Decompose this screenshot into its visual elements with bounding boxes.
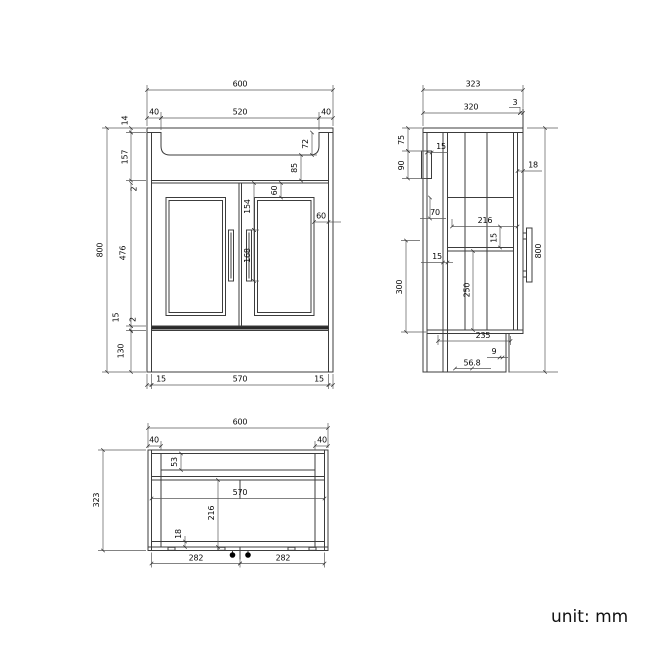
dim-front-base-inner-width: 570	[233, 375, 248, 384]
dim-front-base-right-inset: 15	[314, 375, 324, 384]
side-view-labels: 323 320 3 75 90 15 18 70 216 15 15 300 2…	[395, 80, 543, 368]
dim-side-drawer-offset: 70	[430, 208, 440, 217]
dim-plan-inner-depth: 216	[207, 506, 216, 521]
dim-front-top-gap: 2	[130, 186, 139, 191]
fixing-hole	[230, 552, 236, 558]
dim-front-plinth-height: 130	[117, 344, 126, 359]
dim-front-bottom-inset: 15	[112, 313, 121, 323]
dim-side-door-thickness: 18	[528, 161, 538, 170]
dim-front-basin-width: 520	[233, 108, 248, 117]
basin-outline	[161, 133, 319, 156]
hinge-plate	[218, 547, 225, 550]
technical-drawing-page: 600 40 520 40 14 157 2 476 15 2 130 800 …	[0, 0, 650, 650]
dim-front-base-left-inset: 15	[156, 375, 166, 384]
dim-side-plinth-depth: 235	[476, 331, 491, 340]
dim-side-front-gap: 3	[513, 98, 518, 107]
dim-side-lower-height: 300	[395, 280, 404, 295]
front-cabinet-outline	[147, 128, 333, 372]
dim-front-overall-height: 800	[96, 243, 105, 258]
dim-plan-overall-width: 600	[233, 418, 248, 427]
left-door-panel	[166, 198, 226, 316]
dim-side-bracket-top-offset: 75	[397, 135, 406, 145]
dim-front-left-overhang: 40	[149, 108, 159, 117]
front-view	[147, 128, 333, 372]
dim-side-bracket-thickness: 15	[436, 142, 446, 151]
dim-side-inner-depth: 216	[478, 216, 493, 225]
plan-view-dimensions	[98, 423, 328, 568]
front-view-dimensions	[102, 85, 341, 389]
plan-view-labels: 600 40 40 323 53 570 216 18 282 282	[92, 418, 327, 563]
dim-side-back-panel-thickness: 15	[432, 252, 442, 261]
dim-side-shelf-gap: 15	[490, 233, 499, 243]
dim-plan-fixing-spacing-left: 282	[189, 554, 204, 563]
dim-plan-right-overhang: 40	[317, 436, 327, 445]
dim-side-plinth-thickness: 9	[492, 347, 497, 356]
dim-front-panel-top-offset: 60	[270, 186, 279, 196]
dim-front-right-overhang: 40	[321, 108, 331, 117]
dim-side-overall-height: 800	[534, 244, 543, 259]
side-door-handle	[527, 228, 533, 282]
dim-front-bottom-gap: 2	[129, 317, 138, 322]
dim-plan-overall-depth: 323	[92, 493, 101, 508]
dim-front-panel-side-offset: 60	[316, 212, 326, 221]
dim-plan-back-rail: 18	[174, 529, 183, 539]
dim-front-overall-width: 600	[233, 80, 248, 89]
unit-note: unit: mm	[551, 607, 628, 627]
dim-front-handle-length: 168	[243, 248, 252, 263]
dim-front-handle-top-offset: 154	[243, 199, 252, 214]
dim-front-door-height: 476	[119, 246, 128, 261]
vanity-unit-drawing: 600 40 520 40 14 157 2 476 15 2 130 800 …	[0, 0, 650, 650]
hinge-plate	[168, 547, 175, 550]
door-bottom-shadow	[152, 327, 329, 330]
dim-side-bracket-height: 90	[397, 161, 406, 171]
dim-side-plinth-recess: 56.8	[463, 359, 480, 368]
right-door-panel	[255, 198, 315, 316]
hinge-plate	[309, 547, 316, 550]
dim-plan-fixing-spacing-right: 282	[276, 554, 291, 563]
dim-plan-left-overhang: 40	[149, 436, 159, 445]
dim-front-basin-depth: 72	[301, 139, 310, 149]
dim-front-upper-height: 157	[121, 150, 130, 165]
dim-front-top-thickness: 14	[121, 116, 130, 126]
dim-side-top-depth: 320	[464, 103, 479, 112]
hinge-plate	[288, 547, 295, 550]
fixing-hole	[245, 552, 251, 558]
dim-plan-front-rail: 53	[170, 457, 179, 467]
dim-front-basin-to-doors: 85	[290, 163, 299, 173]
dim-side-overall-depth: 323	[466, 80, 481, 89]
dim-side-shelf-clearance: 250	[463, 283, 472, 298]
dim-plan-inner-width: 570	[233, 488, 248, 497]
